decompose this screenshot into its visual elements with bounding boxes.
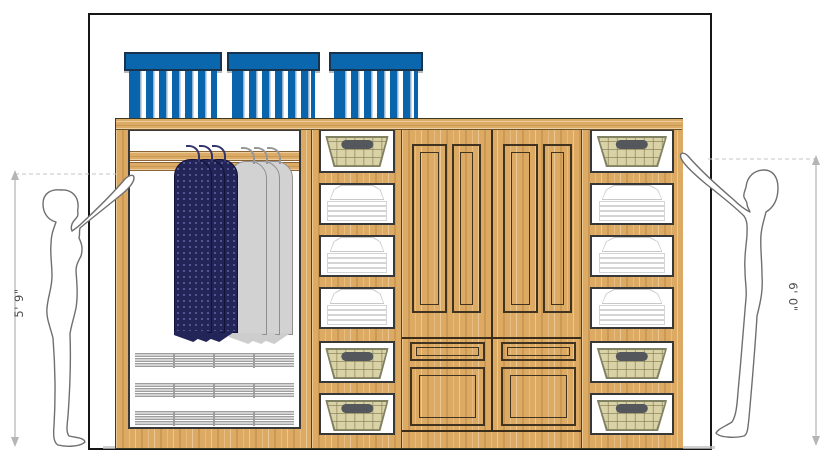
basket-handle-icon: [616, 404, 648, 413]
pullout-rack-1[interactable]: [135, 353, 294, 368]
bin-body: [334, 71, 418, 125]
garment-bag-navy: [174, 159, 212, 333]
storage-bin-3[interactable]: [329, 52, 423, 125]
hanger-hook-icon: [186, 145, 200, 162]
cubby-basket[interactable]: [319, 341, 395, 383]
bin-lid: [227, 52, 320, 71]
basket-handle-icon: [616, 352, 648, 361]
basket-handle-icon: [616, 140, 648, 149]
woven-basket: [597, 348, 667, 379]
top-shelf: [116, 119, 682, 130]
base-line: [402, 430, 582, 432]
cubby-column-middle[interactable]: [311, 119, 402, 448]
large-drawer-right[interactable]: [501, 367, 576, 426]
pullout-rack-2[interactable]: [135, 383, 294, 398]
small-drawer-right[interactable]: [501, 342, 576, 361]
basket-handle-icon: [341, 404, 373, 413]
door-bottom-line: [402, 337, 582, 339]
cubby-basket[interactable]: [590, 393, 674, 435]
cubby-basket[interactable]: [590, 129, 674, 173]
hanger-hook-icon: [241, 147, 255, 164]
bin-lid: [124, 52, 222, 71]
hanger-hook-icon: [267, 147, 281, 164]
figure-woman-silhouette[interactable]: [22, 168, 140, 450]
door-section[interactable]: [401, 119, 583, 448]
hanging-section[interactable]: [116, 119, 311, 448]
cubby-linens[interactable]: [590, 235, 674, 277]
folded-linens: [598, 237, 667, 271]
woven-basket: [325, 136, 388, 167]
bin-body: [129, 71, 217, 125]
cabinet-door-left[interactable]: [402, 129, 492, 337]
bin-body: [232, 71, 315, 125]
folded-linens: [598, 185, 667, 219]
woven-basket: [325, 348, 388, 379]
cubby-basket[interactable]: [319, 129, 395, 173]
cubby-basket[interactable]: [590, 341, 674, 383]
cubby-column-right[interactable]: [581, 119, 683, 448]
folded-linens: [326, 237, 388, 271]
hanging-interior: [128, 129, 301, 429]
closet-unit[interactable]: [115, 118, 683, 449]
folded-linens: [326, 185, 388, 219]
folded-linens: [326, 289, 388, 323]
folded-linens: [598, 289, 667, 323]
cubby-linens[interactable]: [319, 235, 395, 277]
hanger-hook-icon: [212, 145, 226, 162]
cubby-linens[interactable]: [319, 287, 395, 329]
hanger-hook-icon: [254, 147, 268, 164]
basket-handle-icon: [341, 140, 373, 149]
basket-handle-icon: [341, 352, 373, 361]
bin-lid: [329, 52, 423, 71]
small-drawer-left[interactable]: [410, 342, 485, 361]
storage-bin-1[interactable]: [124, 52, 222, 125]
woven-basket: [597, 136, 667, 167]
cabinet-door-right[interactable]: [493, 129, 582, 337]
cubby-linens[interactable]: [590, 287, 674, 329]
cubby-linens[interactable]: [590, 183, 674, 225]
storage-bin-2[interactable]: [227, 52, 320, 125]
woven-basket: [597, 400, 667, 431]
woven-basket: [325, 400, 388, 431]
figure-man-silhouette[interactable]: [678, 140, 796, 450]
cubby-linens[interactable]: [319, 183, 395, 225]
hanger-hook-icon: [199, 145, 213, 162]
cubby-basket[interactable]: [319, 393, 395, 435]
design-canvas: 5' 9" 6' 0": [0, 0, 840, 466]
large-drawer-left[interactable]: [410, 367, 485, 426]
pullout-rack-3[interactable]: [135, 411, 294, 426]
